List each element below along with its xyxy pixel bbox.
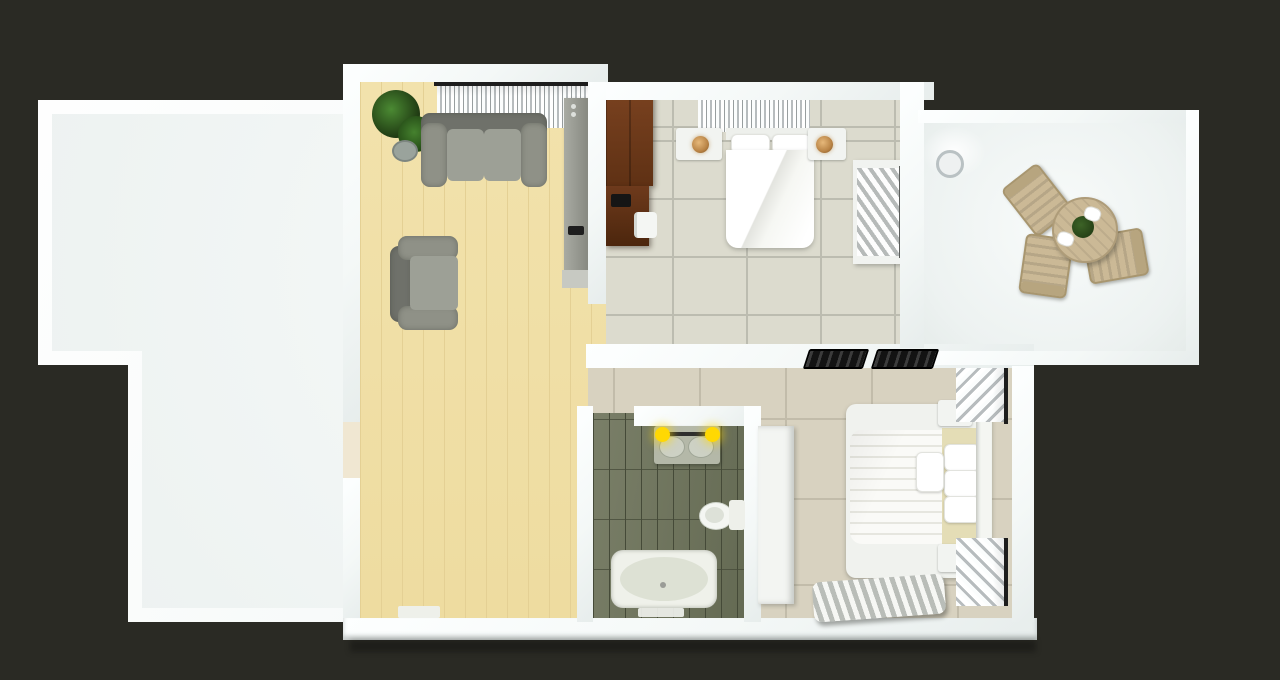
laptop — [611, 194, 631, 207]
cabinet-knob — [571, 104, 576, 109]
bathmat — [638, 608, 684, 617]
media-cabinet — [564, 98, 590, 270]
wall-right-terrace-right — [1186, 110, 1199, 365]
building-shadow — [350, 640, 1036, 652]
toilet-tank — [729, 500, 745, 530]
open-wardrobe — [853, 160, 905, 264]
wall-bedroom-top — [588, 82, 934, 100]
wall-outer-bottom — [343, 618, 1037, 640]
pillow — [944, 470, 980, 497]
wall-right-terrace-top — [918, 110, 1198, 123]
bedside-lamp — [816, 136, 833, 153]
wood-wardrobe — [605, 88, 653, 186]
sofa-armrest — [521, 123, 547, 187]
wall-living-bedroom-divider — [588, 82, 606, 304]
curtain-rod — [1004, 368, 1008, 424]
hanging-clothes — [857, 168, 899, 256]
bed-duvet — [726, 150, 814, 248]
doormat — [398, 606, 440, 618]
bedroom-bottom-window-curtain — [956, 538, 1008, 606]
bathtub-drain — [660, 582, 666, 588]
pillow — [944, 444, 980, 471]
white-plant-pot — [936, 150, 964, 178]
bedside-lamp — [692, 136, 709, 153]
vanity-light — [705, 427, 720, 442]
curtain-rod — [1004, 538, 1008, 606]
sofa-armrest — [421, 123, 447, 187]
wardrobe — [758, 426, 794, 604]
sofa-cushion — [447, 129, 484, 181]
wall-outer-left — [343, 64, 360, 422]
cabinet-slot — [568, 226, 584, 235]
wall-bedroom-bottom-right — [1012, 366, 1034, 622]
floor-plan-canvas — [0, 0, 1280, 680]
wall-bathroom-top — [634, 406, 760, 426]
wall-outer-left — [343, 478, 360, 624]
desk-chair — [634, 212, 657, 238]
bathtub-basin — [620, 557, 708, 601]
wall-vent — [803, 349, 869, 369]
cabinet-knob — [571, 112, 576, 117]
terrace-door-opening — [343, 422, 360, 478]
wall-living-top — [343, 64, 608, 82]
wall-bathroom-left — [577, 406, 593, 622]
armchair-seat — [410, 256, 458, 310]
toilet-seat — [705, 507, 724, 523]
bedroom-bottom-window-curtain — [956, 368, 1008, 422]
wall-vent — [871, 349, 939, 369]
plant-pot — [392, 140, 418, 162]
sofa-cushion — [484, 129, 521, 181]
pillow — [944, 496, 980, 523]
vanity-light — [655, 427, 670, 442]
wall-right-terrace-bottom — [918, 351, 1198, 365]
pillow — [916, 452, 944, 492]
media-cabinet-base — [562, 270, 590, 288]
